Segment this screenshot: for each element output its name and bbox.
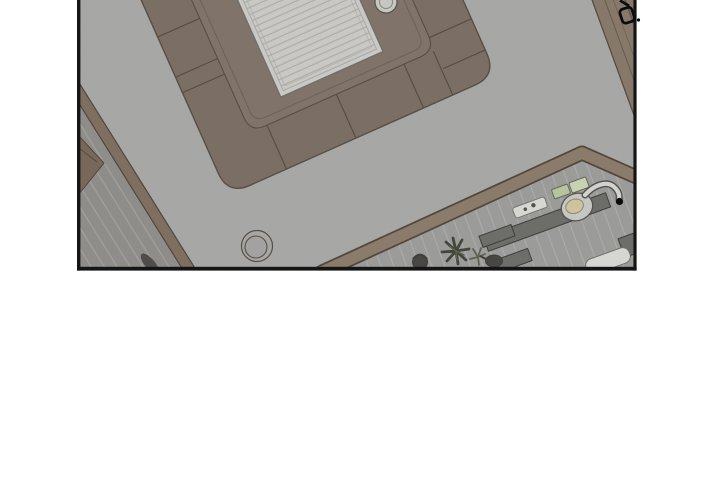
drain-dot — [616, 198, 623, 205]
panel-border-right — [633, 0, 636, 271]
page — [0, 0, 720, 500]
panel-border-bottom — [77, 267, 637, 271]
overlap-object-dot — [637, 18, 640, 21]
panel-border-left — [77, 0, 80, 271]
comic-panel-art — [0, 0, 720, 500]
